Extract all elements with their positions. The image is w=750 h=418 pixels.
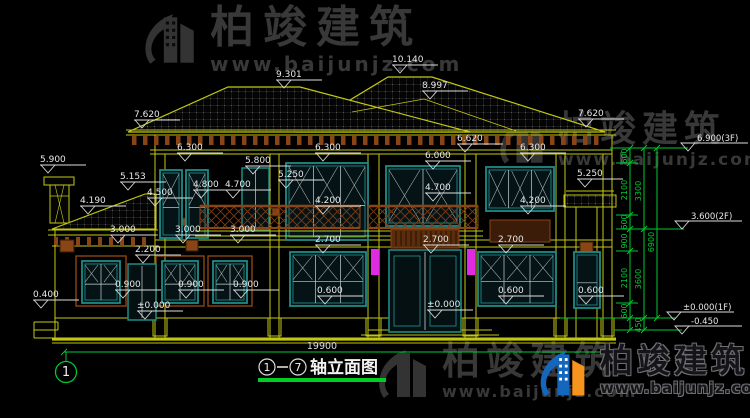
svg-text:0.900: 0.900 xyxy=(178,280,204,290)
svg-text:5.250: 5.250 xyxy=(577,169,603,179)
logo-bottom-right: 柏竣建筑 www.baijunjz.com xyxy=(534,344,750,404)
svg-text:7.620: 7.620 xyxy=(578,109,604,119)
svg-text:±0.000: ±0.000 xyxy=(427,300,461,310)
svg-text:4.700: 4.700 xyxy=(225,180,251,190)
svg-text:2.200: 2.200 xyxy=(135,245,161,255)
svg-text:2.700: 2.700 xyxy=(423,235,449,245)
svg-text:600: 600 xyxy=(620,214,629,229)
svg-text:0.600: 0.600 xyxy=(317,286,343,296)
svg-text:4.200: 4.200 xyxy=(520,196,546,206)
axis-bubble-1: 1 xyxy=(56,362,77,383)
cad-elevation-screenshot: 柏竣建筑 www.baijunjz.com 柏竣建筑 www.baijunjz.… xyxy=(0,0,750,418)
svg-text:6.900(3F): 6.900(3F) xyxy=(697,134,738,144)
svg-text:3300: 3300 xyxy=(634,181,643,201)
logo-brand-text: 柏竣建筑 xyxy=(600,344,750,378)
svg-text:5.900: 5.900 xyxy=(40,155,66,165)
svg-text:2.700: 2.700 xyxy=(498,235,524,245)
svg-text:6.300: 6.300 xyxy=(177,143,203,153)
svg-text:4.190: 4.190 xyxy=(80,196,106,206)
svg-text:0.600: 0.600 xyxy=(498,286,524,296)
level-flags: 6.900(3F)3.600(2F)±0.000(1F)-0.450 xyxy=(667,134,748,334)
svg-text:-0.450: -0.450 xyxy=(691,317,718,327)
svg-text:600: 600 xyxy=(620,148,629,163)
svg-text:±0.000(1F): ±0.000(1F) xyxy=(683,303,731,313)
svg-text:4.500: 4.500 xyxy=(147,188,173,198)
svg-text:4.200: 4.200 xyxy=(315,196,341,206)
svg-text:8.997: 8.997 xyxy=(422,81,448,91)
logo-url-text: www.baijunjz.com xyxy=(600,379,750,397)
svg-text:9.301: 9.301 xyxy=(276,70,302,80)
drawing-title: 17轴立面图 xyxy=(258,357,386,382)
svg-text:10.140: 10.140 xyxy=(392,55,424,65)
svg-text:3.000: 3.000 xyxy=(230,225,256,235)
svg-text:5.250: 5.250 xyxy=(278,170,304,180)
svg-text:0.400: 0.400 xyxy=(33,290,59,300)
svg-text:900: 900 xyxy=(620,233,629,248)
svg-text:1: 1 xyxy=(62,365,70,380)
svg-text:6900: 6900 xyxy=(647,232,656,252)
svg-text:5.153: 5.153 xyxy=(120,172,146,182)
chimney xyxy=(44,177,74,223)
svg-text:0.900: 0.900 xyxy=(115,280,141,290)
svg-text:0.900: 0.900 xyxy=(233,280,259,290)
svg-text:2100: 2100 xyxy=(620,268,629,288)
svg-text:7.620: 7.620 xyxy=(134,110,160,120)
svg-text:6.300: 6.300 xyxy=(520,143,546,153)
svg-text:轴立面图: 轴立面图 xyxy=(310,357,378,378)
svg-text:1: 1 xyxy=(264,361,271,374)
svg-text:5.800: 5.800 xyxy=(245,156,271,166)
svg-text:3600: 3600 xyxy=(634,269,643,289)
svg-text:4.700: 4.700 xyxy=(425,183,451,193)
svg-text:600: 600 xyxy=(620,303,629,318)
svg-text:19900: 19900 xyxy=(307,341,337,352)
svg-text:4.800: 4.800 xyxy=(193,180,219,190)
svg-text:2.700: 2.700 xyxy=(315,235,341,245)
svg-text:6.300: 6.300 xyxy=(315,143,341,153)
svg-text:450: 450 xyxy=(634,317,643,332)
svg-text:6.620: 6.620 xyxy=(457,134,483,144)
svg-text:7: 7 xyxy=(295,361,302,374)
svg-text:3.000: 3.000 xyxy=(110,225,136,235)
baijun-logo-color-icon xyxy=(534,344,590,404)
svg-text:0.600: 0.600 xyxy=(578,286,604,296)
svg-text:6.000: 6.000 xyxy=(425,151,451,161)
svg-text:2100: 2100 xyxy=(620,180,629,200)
svg-text:3.000: 3.000 xyxy=(175,225,201,235)
svg-text:±0.000: ±0.000 xyxy=(137,301,171,311)
svg-text:3.600(2F): 3.600(2F) xyxy=(691,212,732,222)
